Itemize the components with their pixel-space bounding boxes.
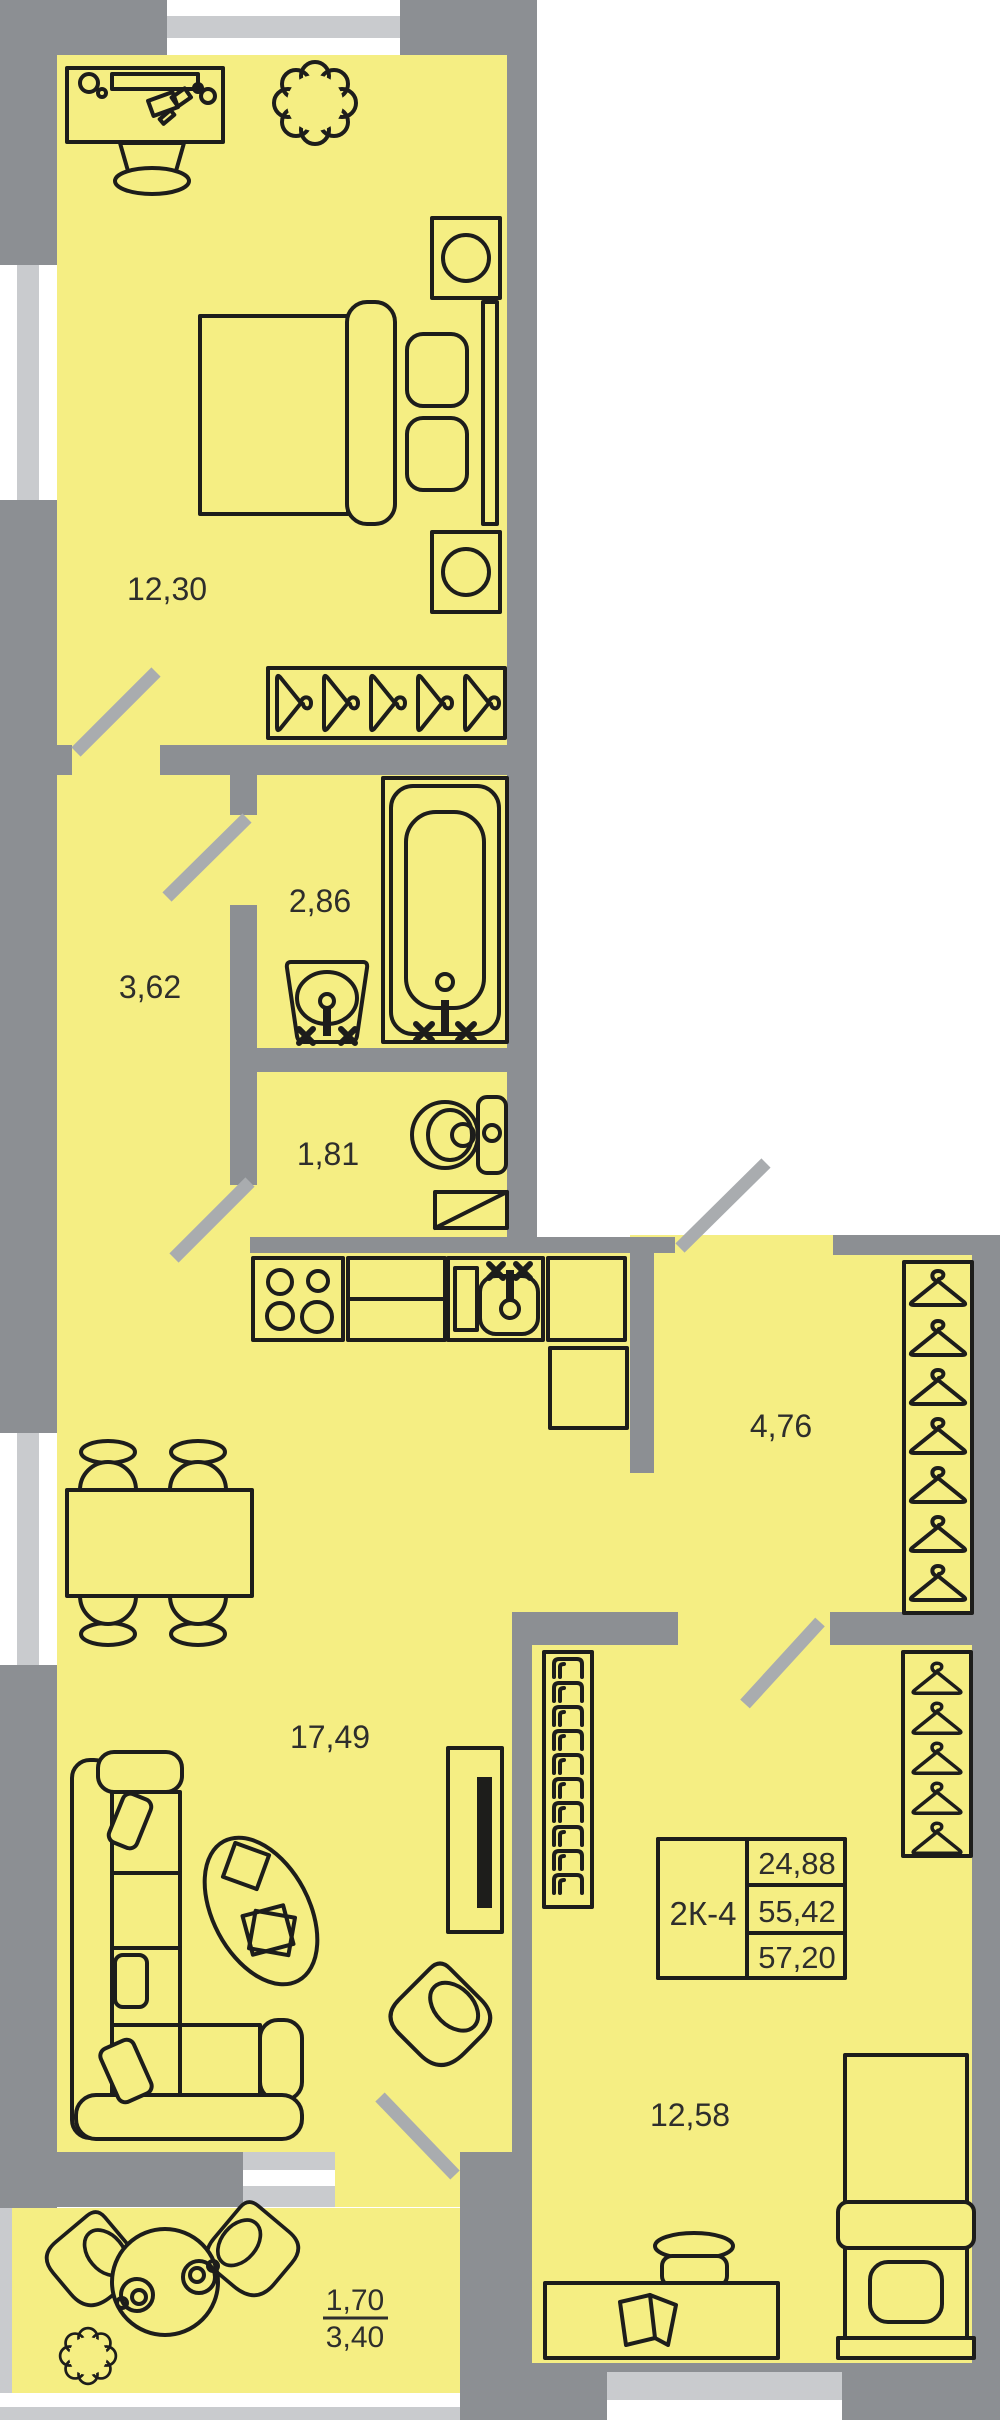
cabinet-icon	[548, 1258, 625, 1340]
balcony-full-area-label: 3,40	[326, 2321, 384, 2354]
bedroom-top-area-label: 12,30	[127, 571, 207, 607]
kitchen-sink-icon	[448, 1258, 543, 1340]
corridor-area-label: 4,76	[750, 1408, 812, 1444]
wc-area-label: 1,81	[297, 1136, 359, 1172]
wall-bath-door-stub	[230, 775, 257, 815]
bookshelf-icon	[544, 1652, 592, 1907]
living-area-label: 17,49	[290, 1719, 370, 1755]
desk-icon	[67, 68, 223, 142]
wall-corridor-top	[833, 1235, 972, 1255]
wall-bedroom2-top-right	[830, 1612, 972, 1645]
desk-icon	[545, 2283, 778, 2358]
wall-living-bedroom2	[512, 1612, 532, 2152]
washer-icon	[435, 1192, 507, 1228]
window-bedroom-left	[0, 265, 57, 500]
fridge-icon	[550, 1348, 627, 1428]
wall-bedroom-door-stub	[57, 745, 72, 775]
bathtub-icon	[383, 778, 507, 1042]
dining-table-icon	[67, 1490, 252, 1596]
nightstand-icon	[432, 218, 500, 298]
wall-living-bottom	[57, 2152, 243, 2207]
floor-plan-svg: 12,30 2,86 3,62 1,81 4,76 17,49 12,58 1,…	[0, 0, 1000, 2420]
kitchen-counter-icon	[348, 1258, 445, 1340]
wall-bath-wc-divider	[257, 1048, 507, 1072]
wall-kitchen-top	[250, 1237, 675, 1253]
window-bedroom2-bottom	[607, 2372, 842, 2420]
wall-kitchen-corridor	[630, 1237, 654, 1473]
window-living-left	[0, 1433, 57, 1665]
unit-value-label: 55,42	[758, 1894, 836, 1929]
wall-right-upper	[507, 0, 537, 1253]
unit-code-label: 2К-4	[670, 1895, 737, 1932]
tv-icon	[448, 1748, 502, 1932]
washbasin-icon	[287, 962, 367, 1043]
bathroom-area-label: 2,86	[289, 883, 351, 919]
desk-chair-icon	[655, 2233, 733, 2286]
window-bedroom-top	[167, 0, 400, 55]
bedroom-bottom-area-label: 12,58	[650, 2097, 730, 2133]
window-balcony-wall	[243, 2152, 335, 2207]
balcony-table-icon	[112, 2229, 218, 2335]
closet-icon	[904, 1262, 972, 1613]
unit-value-label: 24,88	[758, 1846, 836, 1881]
nightstand-icon	[432, 532, 500, 612]
office-chair-icon	[115, 143, 189, 194]
floor-plan: 12,30 2,86 3,62 1,81 4,76 17,49 12,58 1,…	[0, 0, 1000, 2420]
unit-info-table: 2К-4 24,88 55,42 57,20	[658, 1839, 845, 1978]
toilet-icon	[412, 1097, 506, 1173]
wardrobe-icon	[268, 668, 505, 738]
closet-icon	[903, 1652, 971, 1856]
stove-icon	[253, 1258, 343, 1340]
hall-area-label: 3,62	[119, 969, 181, 1005]
wall-bedroom2-top-left	[512, 1612, 678, 1645]
corridor-furniture	[904, 1262, 972, 1613]
wall-bedroom-bottom	[160, 745, 537, 775]
wall-right-outer	[972, 1235, 1000, 2420]
balcony-reduced-area-label: 1,70	[326, 2284, 384, 2317]
single-bed-icon	[838, 2055, 974, 2358]
wall-hall-divider	[230, 905, 257, 1185]
unit-value-label: 57,20	[758, 1940, 836, 1975]
